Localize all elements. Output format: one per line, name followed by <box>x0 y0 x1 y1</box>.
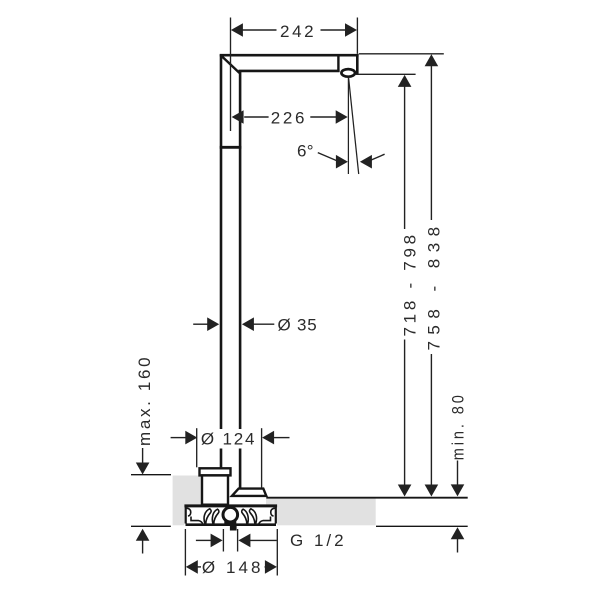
svg-text:G 1/2: G 1/2 <box>290 531 347 550</box>
svg-text:718 - 798: 718 - 798 <box>400 232 419 337</box>
svg-text:Ø 148: Ø 148 <box>202 558 264 577</box>
svg-text:min. 80: min. 80 <box>448 392 467 460</box>
svg-text:6°: 6° <box>297 142 317 161</box>
svg-text:max. 160: max. 160 <box>135 354 154 446</box>
svg-text:Ø 124: Ø 124 <box>201 430 258 449</box>
svg-text:242: 242 <box>280 22 317 41</box>
svg-text:758 - 838: 758 - 838 <box>425 224 444 351</box>
svg-text:226: 226 <box>271 108 308 127</box>
svg-text:Ø 35: Ø 35 <box>278 315 321 334</box>
